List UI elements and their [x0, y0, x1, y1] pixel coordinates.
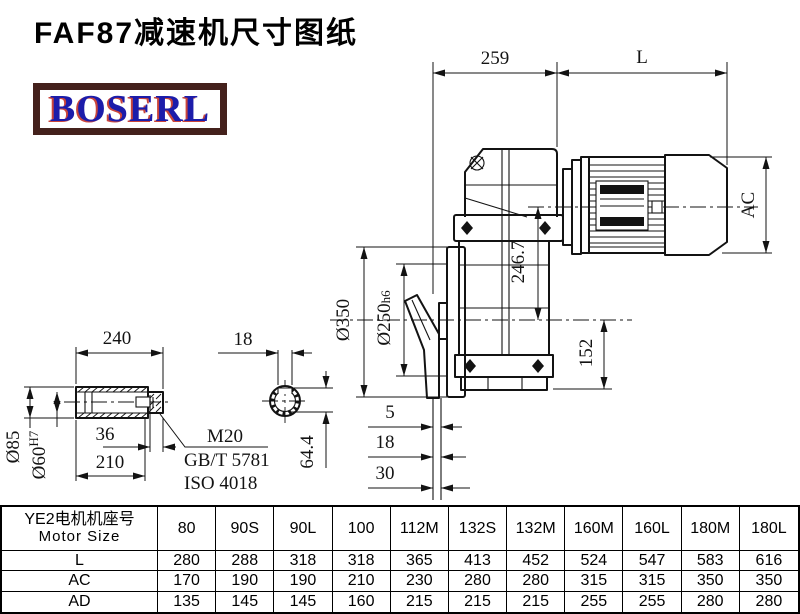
col-header: 90S	[216, 507, 274, 551]
table-cell: 215	[507, 592, 565, 612]
table-cell: 280	[507, 571, 565, 591]
row-label: L	[2, 551, 158, 571]
table-cell: 413	[449, 551, 507, 571]
table-cell: 350	[740, 571, 798, 591]
dim-flange-diameter: Ø350	[333, 299, 354, 341]
motor-view	[563, 155, 727, 255]
dim-keyway-width: 18	[234, 329, 253, 350]
dim-face-offset-1: 5	[385, 402, 395, 423]
table-cell: 190	[274, 571, 332, 591]
bolt-mark-icon	[461, 221, 473, 235]
dim-axis-distance: 246.7	[508, 241, 529, 284]
table-cell: 280	[158, 551, 216, 571]
col-header: 132S	[449, 507, 507, 551]
table-cell: 145	[274, 592, 332, 612]
table-header-cn: YE2电机机座号	[24, 511, 134, 529]
bolt-mark-icon	[539, 221, 551, 235]
table-cell: 315	[565, 571, 623, 591]
dim-bore-diameter: Ø60H7	[26, 430, 50, 479]
col-header: 80	[158, 507, 216, 551]
dim-spigot-tolerance: h6	[378, 290, 393, 304]
dim-motor-diameter: AC	[738, 192, 759, 218]
table-cell: 280	[449, 571, 507, 591]
table-cell: 315	[623, 571, 681, 591]
table-cell: 452	[507, 551, 565, 571]
col-header: 180L	[740, 507, 798, 551]
table-header-motor-size: YE2电机机座号 Motor Size	[2, 507, 158, 551]
gearbox-view	[405, 149, 563, 500]
table-cell: 547	[623, 551, 681, 571]
col-header: 90L	[274, 507, 332, 551]
table-header-en: Motor Size	[39, 529, 121, 546]
callout-thread: M20	[207, 426, 243, 447]
table-cell: 288	[216, 551, 274, 571]
table-cell: 350	[682, 571, 740, 591]
table-cell: 524	[565, 551, 623, 571]
table-cell: 318	[274, 551, 332, 571]
callout-standard-iso: ISO 4018	[184, 473, 257, 494]
callout-standard-gb: GB/T 5781	[184, 450, 270, 471]
table-cell: 170	[158, 571, 216, 591]
dim-face-offset-3: 30	[376, 463, 395, 484]
table-cell: 255	[565, 592, 623, 612]
bolt-mark-icon	[532, 359, 544, 373]
dim-face-offset-2: 18	[376, 432, 395, 453]
table-cell: 190	[216, 571, 274, 591]
dim-keyway-depth: 64.4	[297, 435, 318, 469]
dim-sleeve-length: 240	[103, 328, 132, 349]
dimension-drawing: 259 L AC Ø350 Ø250h6 246.7 152 5	[0, 0, 800, 505]
table-cell: 230	[391, 571, 449, 591]
dim-axis-to-base: 152	[576, 339, 597, 368]
dim-sleeve-body: 210	[96, 452, 125, 473]
col-header: 112M	[391, 507, 449, 551]
table-cell: 210	[333, 571, 391, 591]
dim-bore-value: Ø60	[29, 447, 50, 480]
table-cell: 215	[449, 592, 507, 612]
row-label: AD	[2, 592, 158, 612]
row-label: AC	[2, 571, 158, 591]
dim-outer-diameter: Ø85	[3, 431, 24, 464]
dim-spigot-diameter: Ø250h6	[374, 290, 395, 346]
motor-size-table: YE2电机机座号 Motor Size 80 90S 90L 100 112M …	[0, 505, 800, 614]
table-cell: 255	[623, 592, 681, 612]
dim-end-step: 36	[96, 424, 115, 445]
table-cell: 135	[158, 592, 216, 612]
table-cell: 145	[216, 592, 274, 612]
dim-motor-length: L	[636, 47, 648, 68]
col-header: 132M	[507, 507, 565, 551]
dim-bore-tolerance: H7	[26, 430, 41, 446]
dimension-lines: 259 L AC Ø350 Ø250h6 246.7 152 5	[3, 47, 772, 494]
table-cell: 215	[391, 592, 449, 612]
table-cell: 280	[682, 592, 740, 612]
table-cell: 318	[333, 551, 391, 571]
table-cell: 583	[682, 551, 740, 571]
col-header: 160M	[565, 507, 623, 551]
col-header: 100	[333, 507, 391, 551]
dim-spigot-value: Ø250	[374, 303, 395, 345]
mounting-bracket	[405, 295, 439, 398]
col-header: 160L	[623, 507, 681, 551]
table-cell: 280	[740, 592, 798, 612]
dim-gearbox-length: 259	[481, 48, 510, 69]
table-cell: 365	[391, 551, 449, 571]
table-cell: 160	[333, 592, 391, 612]
table-cell: 616	[740, 551, 798, 571]
col-header: 180M	[682, 507, 740, 551]
drawing-sheet: FAF87减速机尺寸图纸 BOSERL	[0, 0, 800, 614]
